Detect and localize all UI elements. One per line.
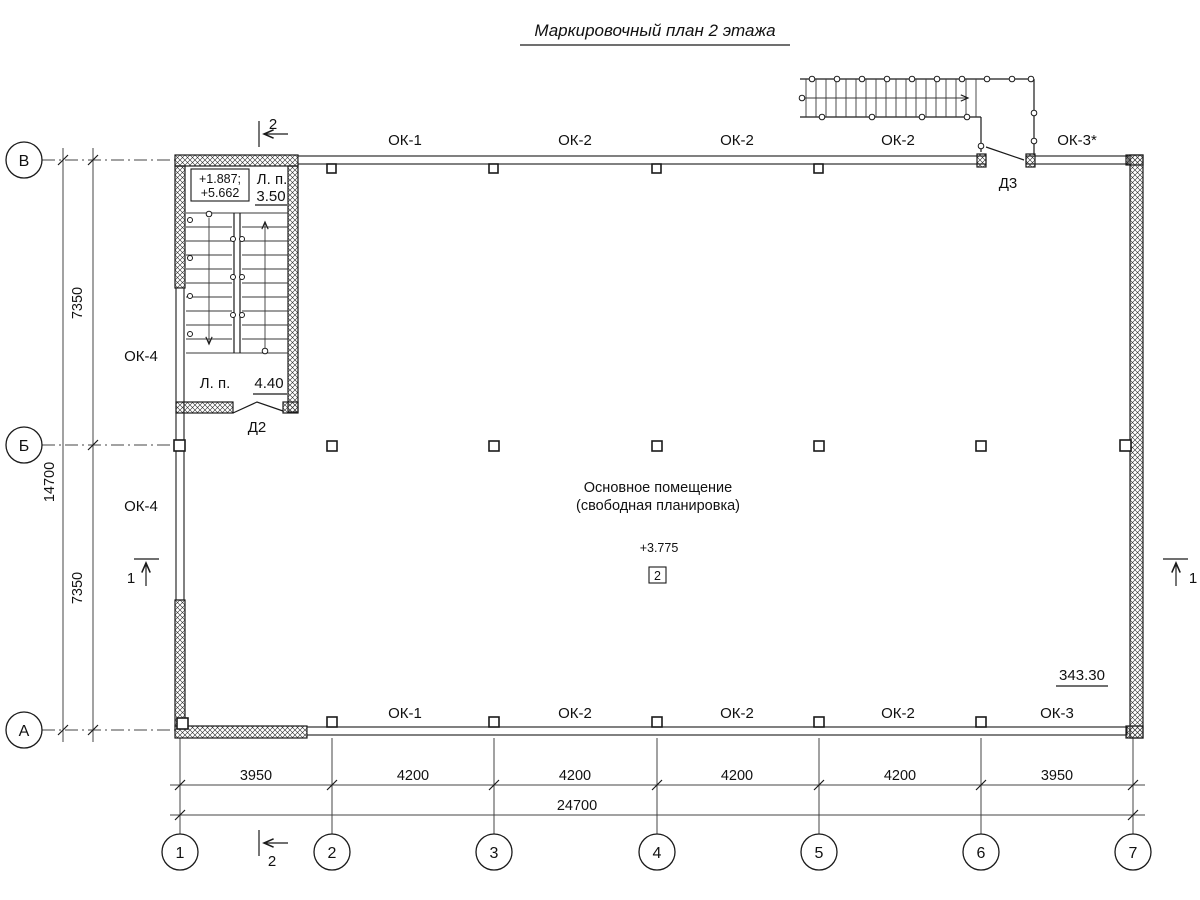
grid-col-label-5: 5: [815, 845, 824, 862]
left-wall-hatch-bottom: [175, 600, 185, 726]
upper-landing-value: 3.50: [256, 188, 285, 205]
dim-left-segment-1: 7350: [70, 287, 86, 319]
right-wall-hatch: [1130, 155, 1143, 738]
grid-bubble-col-5: 5: [801, 834, 837, 870]
top-wall-hatch-left: [175, 155, 298, 166]
section-label-1-right: 1: [1189, 570, 1197, 587]
window-label-left-1: ОК-4: [124, 348, 158, 365]
bottom-wall-hatch-left: [175, 726, 307, 738]
room-number: 2: [654, 569, 661, 583]
dim-bottom-total: 24700: [557, 798, 597, 814]
window-label-left-2: ОК-4: [124, 498, 158, 515]
floor-plan-svg: Маркировочный план 2 этажа В Б А 1: [0, 0, 1200, 900]
left-wall-hatch-top: [175, 166, 185, 288]
window-label-top-3: ОК-2: [720, 132, 754, 149]
grid-col-label-1: 1: [176, 845, 185, 862]
grid-bubble-row-a: А: [6, 712, 42, 748]
section-label-2-bottom: 2: [268, 853, 276, 870]
grid-row-label-b: Б: [19, 438, 30, 455]
top-wall-window-band: [298, 156, 986, 164]
stairwell-landing-wall-left: [176, 402, 233, 413]
drawing-sheet: Маркировочный план 2 этажа В Б А 1: [0, 0, 1200, 900]
room-name: Основное помещение: [584, 480, 732, 496]
grid-row-label-v: В: [19, 153, 30, 170]
door-d3-jamb-left: [977, 154, 986, 167]
bottom-wall-window-band: [307, 727, 1127, 735]
stairwell-landing-wall-right: [283, 402, 298, 413]
window-label-bottom-2: ОК-2: [558, 705, 592, 722]
upper-landing-label: Л. п.: [257, 171, 287, 188]
grid-col-label-3: 3: [490, 845, 499, 862]
grid-bubble-col-3: 3: [476, 834, 512, 870]
dim-bottom-2: 4200: [397, 768, 429, 784]
top-wall-window-band-right: [1026, 156, 1128, 164]
grid-col-label-6: 6: [977, 845, 986, 862]
page-title: Маркировочный план 2 этажа: [534, 21, 775, 40]
external-stair-arrow-start: [799, 95, 805, 101]
dim-bottom-5: 4200: [884, 768, 916, 784]
grid-bubble-col-6: 6: [963, 834, 999, 870]
section-label-2-top: 2: [269, 116, 277, 133]
dim-left-segment-2: 7350: [70, 572, 86, 604]
grid-bubble-col-4: 4: [639, 834, 675, 870]
room-area: 343.30: [1059, 667, 1105, 684]
grid-bubble-row-v: В: [6, 142, 42, 178]
door-d3-jamb-right: [1026, 154, 1035, 167]
grid-col-label-4: 4: [653, 845, 662, 862]
window-label-top-2: ОК-2: [558, 132, 592, 149]
dim-left-total: 14700: [42, 462, 58, 502]
door-d3-label: Д3: [999, 175, 1018, 192]
grid-bubble-col-2: 2: [314, 834, 350, 870]
lower-landing-label: Л. п.: [200, 375, 230, 392]
window-label-bottom-5: ОК-3: [1040, 705, 1074, 722]
door-d2-label: Д2: [248, 419, 267, 436]
dim-bottom-4: 4200: [721, 768, 753, 784]
stairwell-right-wall: [288, 166, 298, 412]
dim-bottom-1: 3950: [240, 768, 272, 784]
grid-bubble-col-7: 7: [1115, 834, 1151, 870]
grid-bubble-col-1: 1: [162, 834, 198, 870]
window-label-top-4: ОК-2: [881, 132, 915, 149]
level-mark-line2: +5.662: [201, 186, 240, 200]
grid-col-label-7: 7: [1129, 845, 1138, 862]
window-label-bottom-3: ОК-2: [720, 705, 754, 722]
grid-row-label-a: А: [19, 723, 30, 740]
lower-landing-value: 4.40: [254, 375, 283, 392]
bottom-right-corner-hatch: [1126, 726, 1143, 738]
level-mark-line1: +1.887;: [199, 172, 241, 186]
window-label-top-5: ОК-3*: [1057, 132, 1097, 149]
window-label-bottom-1: ОК-1: [388, 705, 422, 722]
dim-bottom-3: 4200: [559, 768, 591, 784]
section-label-1-left: 1: [127, 570, 135, 587]
grid-col-label-2: 2: [328, 845, 337, 862]
room-name-2: (свободная планировка): [576, 498, 740, 514]
window-label-bottom-4: ОК-2: [881, 705, 915, 722]
dim-bottom-6: 3950: [1041, 768, 1073, 784]
room-level: +3.775: [640, 541, 679, 555]
window-label-top-1: ОК-1: [388, 132, 422, 149]
grid-bubble-row-b: Б: [6, 427, 42, 463]
